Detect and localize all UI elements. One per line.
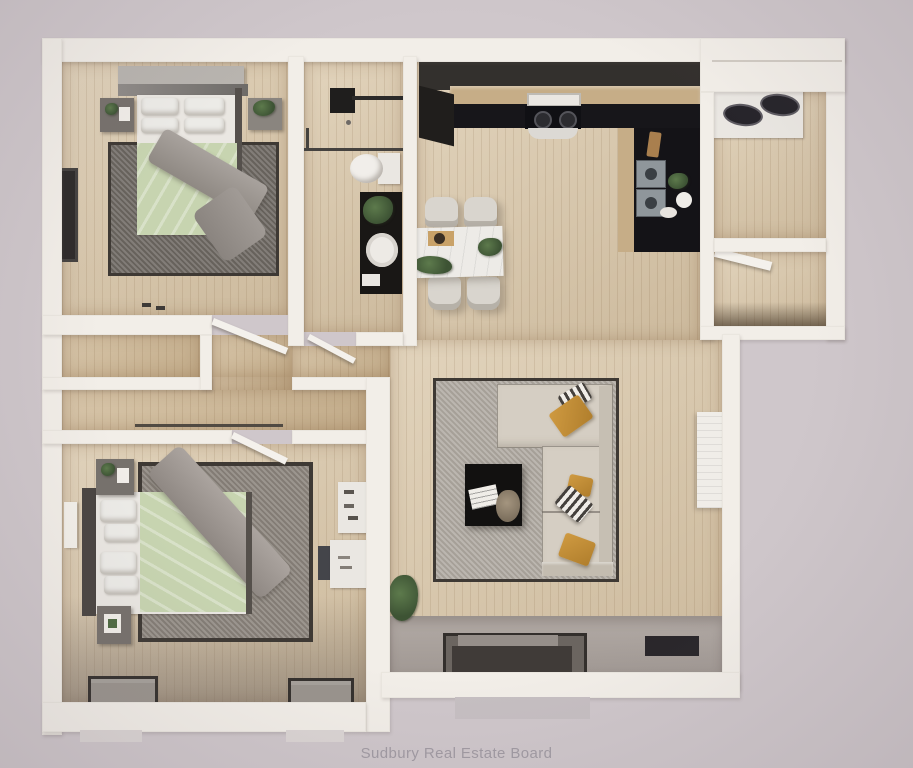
wall-bathroom-bottom xyxy=(356,332,403,346)
wall-closet1-right xyxy=(200,335,212,390)
nightstand-frame-left xyxy=(119,107,130,121)
vanity-towels xyxy=(362,274,380,286)
wall-laundry-mid xyxy=(714,238,826,252)
exterior-step-left xyxy=(80,730,142,742)
tray-bowl xyxy=(434,233,445,244)
bedroom2-desk xyxy=(330,540,368,588)
dining-chair-1 xyxy=(425,197,458,227)
entry-shoe-tray xyxy=(645,636,699,656)
storage-closet-floor-shadow xyxy=(714,302,826,326)
closet1-floor xyxy=(62,335,200,377)
burner-left-icon xyxy=(534,111,552,129)
counter-run-wood-edge xyxy=(618,128,634,252)
bed2-headboard xyxy=(82,488,96,616)
dining-chair-2 xyxy=(464,197,497,227)
vanity-sink xyxy=(366,233,398,267)
floorplan-render: Sudbury Real Estate Board xyxy=(0,0,913,768)
sofa-backrest xyxy=(599,386,612,574)
radiator xyxy=(697,412,724,508)
entry-mat-top-strip xyxy=(458,635,558,646)
closet2-rod xyxy=(135,424,283,427)
toilet-bowl xyxy=(350,154,383,183)
kitchen-counter-left xyxy=(450,104,528,128)
bed2-pillow-4 xyxy=(104,576,138,594)
wall-topright-block xyxy=(700,38,845,92)
shelf-decor-marks xyxy=(344,490,354,494)
sink-drain-icon xyxy=(645,168,657,180)
sink-drain-icon xyxy=(645,197,657,209)
wall-entry-bottom xyxy=(381,672,740,698)
exterior-step-right xyxy=(286,730,344,742)
dining-chair-3 xyxy=(428,277,461,310)
range-hood xyxy=(527,93,581,107)
bed2-pillow-2 xyxy=(104,524,138,542)
shower-head-icon xyxy=(330,88,355,113)
wall-bedroom2-top-right xyxy=(292,430,374,444)
kitchen-corner-cabinet xyxy=(419,86,454,147)
bedroom1-slipper-1 xyxy=(142,303,151,307)
bed2-footboard-edge xyxy=(246,492,252,614)
entry-mat-inner xyxy=(452,646,572,674)
wall-bathroom-right xyxy=(403,56,417,346)
wall-right-lower xyxy=(722,334,740,690)
wall-closet-mid-left xyxy=(42,377,212,390)
hallway-floor-gap xyxy=(212,377,292,390)
table-greenery xyxy=(414,256,452,274)
bed2-pillow-1 xyxy=(100,500,136,522)
watermark-text: Sudbury Real Estate Board xyxy=(0,745,913,762)
bed1-headboard xyxy=(118,66,244,85)
bedroom2-wall-art xyxy=(64,502,77,548)
desk-chair-marks xyxy=(338,556,350,559)
counter-jar xyxy=(676,192,692,208)
wall-bathroom-left xyxy=(288,56,304,346)
wall-bedroom2-top-left xyxy=(42,430,232,444)
bed1-pillow-4 xyxy=(184,118,224,133)
kitchen-counter-right xyxy=(580,104,700,128)
wall-bedroom2-bottom xyxy=(42,702,366,732)
shower-glass-line xyxy=(304,148,403,151)
shower-glass-return xyxy=(306,128,309,151)
shower-arm xyxy=(352,96,403,100)
bed2-pillow-3 xyxy=(100,552,136,574)
bedroom1-slipper-2 xyxy=(156,306,165,310)
wall-bedroom1-bottom xyxy=(42,315,212,335)
bed1-pillow-1 xyxy=(141,98,178,115)
wall-topright-edge-line xyxy=(712,60,842,62)
sofa-armrest-bottom xyxy=(542,562,613,576)
wall-closet-mid-right xyxy=(292,377,374,390)
burner-right-icon xyxy=(559,111,577,129)
bedroom2-art-center xyxy=(108,619,117,628)
exterior-step-entry xyxy=(455,697,590,719)
wall-laundry-left xyxy=(700,92,714,340)
dining-chair-4 xyxy=(467,277,500,310)
oven-front xyxy=(528,128,578,139)
bed1-pillow-2 xyxy=(184,98,224,115)
bedroom2-nightstand-frame xyxy=(117,468,129,483)
shower-drain-icon xyxy=(346,120,351,125)
sink-basin-top xyxy=(636,160,666,188)
counter-bowl xyxy=(660,207,677,218)
